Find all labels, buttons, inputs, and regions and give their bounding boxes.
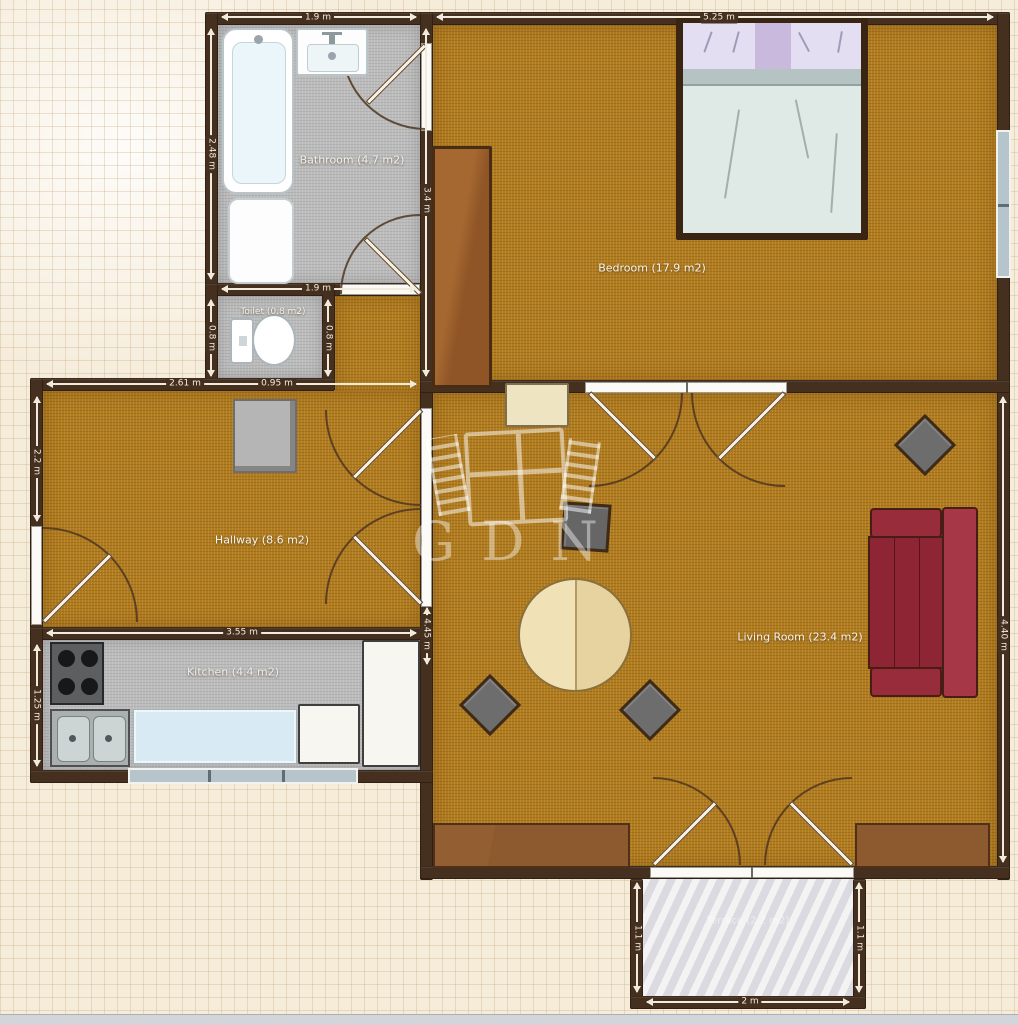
- sofa-armrest: [870, 667, 942, 697]
- watermark-text: GDN: [398, 514, 638, 570]
- burner: [81, 650, 98, 667]
- dim-terrace-right: 1.1 m: [854, 922, 865, 954]
- shower-tray: [228, 198, 294, 284]
- dim-hallway-bottom: 3.55 m: [223, 628, 261, 639]
- toilet-bowl: [252, 314, 296, 366]
- dim-line: [47, 383, 416, 385]
- kitchen-sink-unit: [50, 709, 130, 767]
- dim-hallway-top: 2.61 m: [166, 379, 204, 390]
- dim-kitchen-left: 1.25 m: [31, 686, 42, 724]
- watermark: GDN: [398, 420, 638, 580]
- toilet-tank: [230, 318, 254, 364]
- bathtub: [222, 28, 294, 194]
- hallway-cabinet: [233, 399, 297, 473]
- dim-toilet-right: 0.8 m: [323, 322, 334, 354]
- dim-bathroom-left: 2.48 m: [206, 135, 217, 173]
- floor-plan: 1.9 m 5.25 m 2.48 m 1.9 m 3.4 m 0.8 m 0.…: [0, 0, 1018, 1024]
- dim-bedroom-top: 5.25 m: [700, 13, 738, 24]
- burner: [58, 678, 75, 695]
- bathtub-faucet: [254, 35, 263, 44]
- wardrobe: [432, 146, 492, 388]
- dim-toilet-bottom: 0.95 m: [258, 379, 296, 390]
- dim-hallway-left: 2.2 m: [31, 446, 42, 478]
- hallway-label: Hallway (8.6 m2): [215, 534, 309, 547]
- bedroom-living-door-divider: [686, 382, 688, 393]
- bed-blanket-fold: [683, 69, 861, 86]
- dim-bathroom-bottom: 1.9 m: [302, 284, 334, 295]
- dim-living-left: 4.45 m: [421, 615, 432, 653]
- sofa-armrest: [870, 508, 942, 538]
- toilet-label: Toilet (0.8 m2): [240, 307, 305, 317]
- dim-bedroom-left: 3.4 m: [421, 184, 432, 216]
- burner: [58, 650, 75, 667]
- terrace-label: Terrace (2.2 m2): [707, 916, 790, 927]
- dining-table: [518, 578, 632, 692]
- stove: [50, 642, 104, 705]
- burner: [81, 678, 98, 695]
- kitchen-window: [128, 768, 358, 784]
- watermark-film-strip-right: [559, 438, 601, 514]
- living-room-label: Living Room (23.4 m2): [737, 631, 862, 644]
- entrance-door-opening: [31, 526, 42, 625]
- kitchen-cabinet: [298, 704, 360, 764]
- terrace-floor: [643, 879, 853, 996]
- kitchen-counter: [134, 710, 296, 763]
- dim-toilet-left: 0.8 m: [206, 322, 217, 354]
- dim-terrace-left: 1.1 m: [632, 922, 643, 954]
- kitchen-tall-cabinet: [362, 640, 420, 767]
- dim-terrace-bottom: 2 m: [738, 997, 761, 1008]
- sideboard-right: [855, 823, 990, 868]
- dim-bathroom-top: 1.9 m: [302, 13, 334, 24]
- bathroom-label: Bathroom (4.7 m2): [300, 154, 405, 167]
- kitchen-label: Kitchen (4.4 m2): [187, 666, 279, 679]
- dim-living-right: 4.40 m: [998, 616, 1009, 654]
- sofa-back: [942, 507, 978, 698]
- sofa: [868, 507, 978, 698]
- terrace-door-divider: [751, 867, 753, 878]
- bed: [676, 16, 868, 240]
- bathroom-sink: [296, 28, 368, 76]
- bottom-bar: [0, 1014, 1018, 1025]
- bedroom-window: [996, 130, 1011, 278]
- sideboard-left: [433, 823, 630, 868]
- sofa-seat: [868, 536, 944, 669]
- bedroom-label: Bedroom (17.9 m2): [598, 262, 706, 275]
- corridor-floor: [335, 296, 420, 393]
